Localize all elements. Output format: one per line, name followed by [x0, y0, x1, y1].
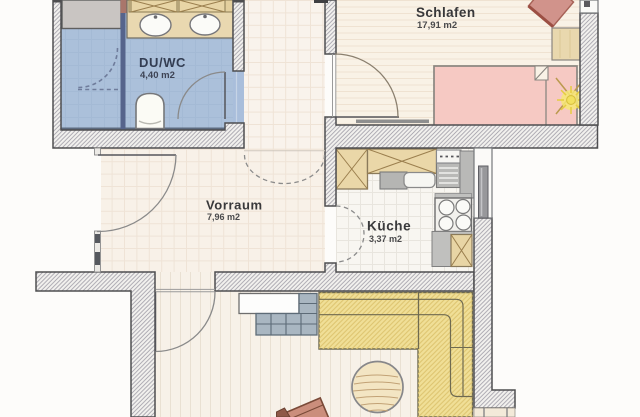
svg-text:3,37 m2: 3,37 m2: [369, 234, 402, 244]
svg-text:7,96 m2: 7,96 m2: [207, 212, 240, 222]
svg-text:DU/WC: DU/WC: [139, 55, 186, 70]
svg-text:Schlafen: Schlafen: [416, 5, 475, 20]
svg-text:17,91 m2: 17,91 m2: [417, 20, 457, 31]
svg-text:Vorraum: Vorraum: [206, 198, 263, 213]
svg-text:Küche: Küche: [367, 219, 411, 234]
svg-text:4,40 m2: 4,40 m2: [140, 70, 175, 81]
